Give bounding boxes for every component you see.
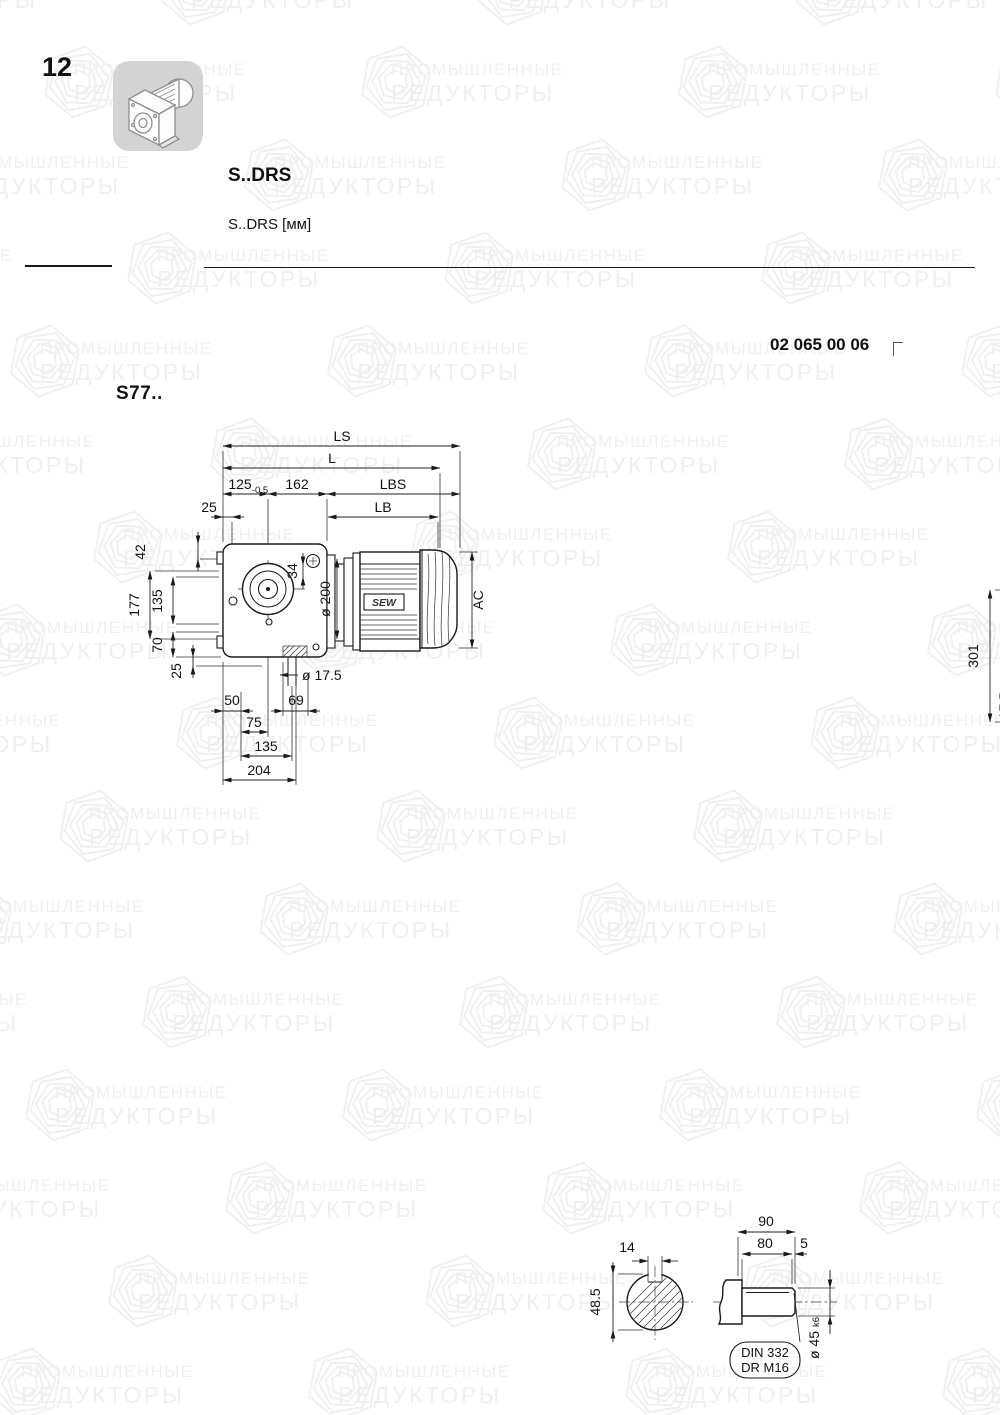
dim-label: ø 17.5 [996,692,1000,732]
dim-label: 50 [224,692,240,708]
watermark: ПРОМЫШЛЕННЫЕРЕДУКТОРЫ [806,689,884,782]
watermark: ПРОМЫШЛЕННЫЕРЕДУКТОРЫ [474,0,552,38]
dim-label: 135 [254,738,278,754]
watermark: ПРОМЫШЛЕННЫЕРЕДУКТОРЫ [772,968,850,1061]
watermark: ПРОМЫШЛЕННЫЕРЕДУКТОРЫ [138,968,216,1061]
watermark: ПРОМЫШЛЕННЫЕРЕДУКТОРЫ [255,875,333,968]
watermark: ПРОМЫШЛЕННЫЕРЕДУКТОРЫ [489,689,567,782]
page-subtitle: S..DRS [мм] [228,216,1000,233]
watermark: ПРОМЫШЛЕННЫЕРЕДУКТОРЫ [123,224,201,317]
watermark: ПРОМЫШЛЕННЫЕРЕДУКТОРЫ [0,1340,65,1415]
watermark: ПРОМЫШЛЕННЫЕРЕДУКТОРЫ [606,596,684,689]
dim-label: LS [333,428,350,444]
dim-label: 25 [168,663,184,679]
watermark: ПРОМЫШЛЕННЫЕРЕДУКТОРЫ [440,224,518,317]
catalog-page: ПРОМЫШЛЕННЫЕРЕДУКТОРЫПРОМЫШЛЕННЫЕРЕДУКТО… [0,0,1000,1415]
dim-label: 125 [228,476,252,492]
watermark: ПРОМЫШЛЕННЫЕРЕДУКТОРЫ [338,1061,416,1154]
watermark: ПРОМЫШЛЕННЫЕРЕДУКТОРЫ [655,1061,733,1154]
watermark: ПРОМЫШЛЕННЫЕРЕДУКТОРЫ [6,317,84,410]
dim-label: 25 [201,499,217,515]
watermark: ПРОМЫШЛЕННЫЕРЕДУКТОРЫ [0,596,50,689]
watermark: ПРОМЫШЛЕННЫЕРЕДУКТОРЫ [791,0,869,38]
callout-thread: DR M16 [741,1360,789,1375]
watermark: ПРОМЫШЛЕННЫЕРЕДУКТОРЫ [889,875,967,968]
callout-standard: DIN 332 [741,1345,789,1360]
watermark: ПРОМЫШЛЕННЫЕРЕДУКТОРЫ [104,1247,182,1340]
watermark: ПРОМЫШЛЕННЫЕРЕДУКТОРЫ [421,1247,499,1340]
dim-label: 80 [757,1235,773,1251]
dim-label: 90 [758,1214,774,1229]
model-designation: S77.. [116,383,1000,405]
watermark: ПРОМЫШЛЕННЫЕРЕДУКТОРЫ [723,503,801,596]
dim-label: 135 [149,589,165,613]
watermark: ПРОМЫШЛЕННЫЕРЕДУКТОРЫ [572,875,650,968]
dim-tolerance: -0.5 [252,485,268,496]
dim-label: 70 [149,637,165,653]
shaft-detail-drawing: 14 48.5 90 80 5 ø 45 k6 DIN 332 DR M16 [585,1214,1000,1409]
dim-label: ø 17.5 [302,667,342,683]
dim-label: 69 [288,692,304,708]
side-view-drawing: SEW [112,424,488,796]
watermark: ПРОМЫШЛЕННЫЕРЕДУКТОРЫ [304,1340,382,1415]
dim-label: 48.5 [587,1288,603,1315]
motor-brand-label: SEW [372,597,397,609]
dim-label: 301 [965,644,981,668]
watermark: ПРОМЫШЛЕННЫЕРЕДУКТОРЫ [523,410,601,503]
dim-label: LBS [380,476,406,492]
watermark: ПРОМЫШЛЕННЫЕРЕДУКТОРЫ [840,410,918,503]
dim-suffix: k6 [811,1317,822,1327]
dim-label: 14 [619,1239,635,1255]
gearmotor-icon [113,61,203,151]
corner-mark-top [893,342,903,356]
front-view-drawing: 195 195 101 301 180 -0.5 ø 17.5 150 120 … [965,526,1000,836]
header-rule-right [204,267,975,269]
watermark: ПРОМЫШЛЕННЫЕРЕДУКТОРЫ [972,1061,1000,1154]
document-number: 02 065 00 06 [770,335,1000,355]
dim-label: ø 45 [806,1331,822,1359]
dim-label: LB [374,499,391,515]
header-rule-left [25,265,112,267]
dim-label: ø 200 [317,581,333,617]
dim-label: 177 [126,593,142,617]
dim-label: 42 [132,544,148,560]
watermark: ПРОМЫШЛЕННЫЕРЕДУКТОРЫ [0,131,1,224]
dim-label: 34 [284,563,300,579]
watermark: ПРОМЫШЛЕННЫЕРЕДУКТОРЫ [455,968,533,1061]
dim-label: L [328,450,336,466]
dim-label: 75 [246,714,262,730]
dim-label: 162 [285,476,309,492]
page-title: S..DRS [228,165,1000,187]
watermark: ПРОМЫШЛЕННЫЕРЕДУКТОРЫ [0,875,16,968]
watermark: ПРОМЫШЛЕННЫЕРЕДУКТОРЫ [21,1061,99,1154]
dim-label: AC [470,590,486,609]
watermark: ПРОМЫШЛЕННЫЕРЕДУКТОРЫ [221,1154,299,1247]
watermark: ПРОМЫШЛЕННЫЕРЕДУКТОРЫ [757,224,835,317]
watermark: ПРОМЫШЛЕННЫЕРЕДУКТОРЫ [689,782,767,875]
dim-label: 5 [800,1235,808,1251]
dim-label: 204 [247,762,271,778]
watermark: ПРОМЫШЛЕННЫЕРЕДУКТОРЫ [157,0,235,38]
